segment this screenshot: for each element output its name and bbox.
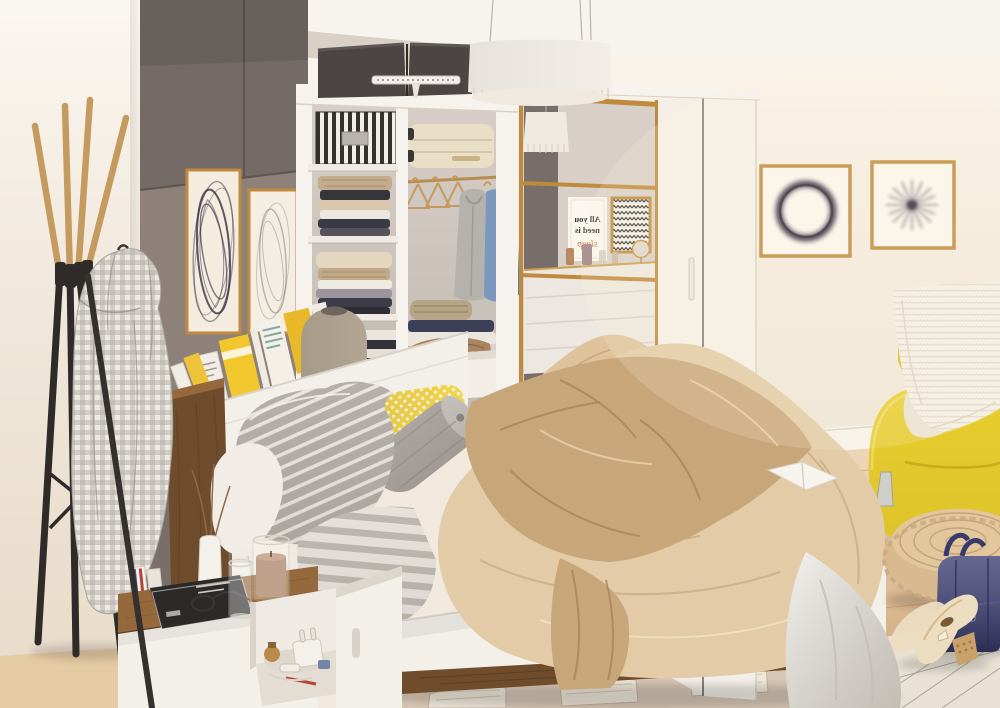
drinking-glass (229, 560, 252, 620)
box-label-plate (342, 132, 368, 145)
wall-art-left-1 (187, 170, 240, 333)
wardrobe-right-stile (496, 88, 518, 432)
suitcase (408, 124, 494, 168)
suitcase-handle (452, 156, 480, 161)
candle-jar (253, 536, 289, 601)
folded-clothes-stack-mid (316, 252, 392, 315)
amber-jar (264, 646, 280, 662)
drawer-handle-groove (352, 628, 360, 658)
storage-boxes (318, 44, 472, 98)
wall-art-left-2 (249, 190, 297, 333)
bedroom-scene: All you need is sleep (0, 0, 1000, 708)
folded-clothes-stack-top (318, 176, 392, 236)
